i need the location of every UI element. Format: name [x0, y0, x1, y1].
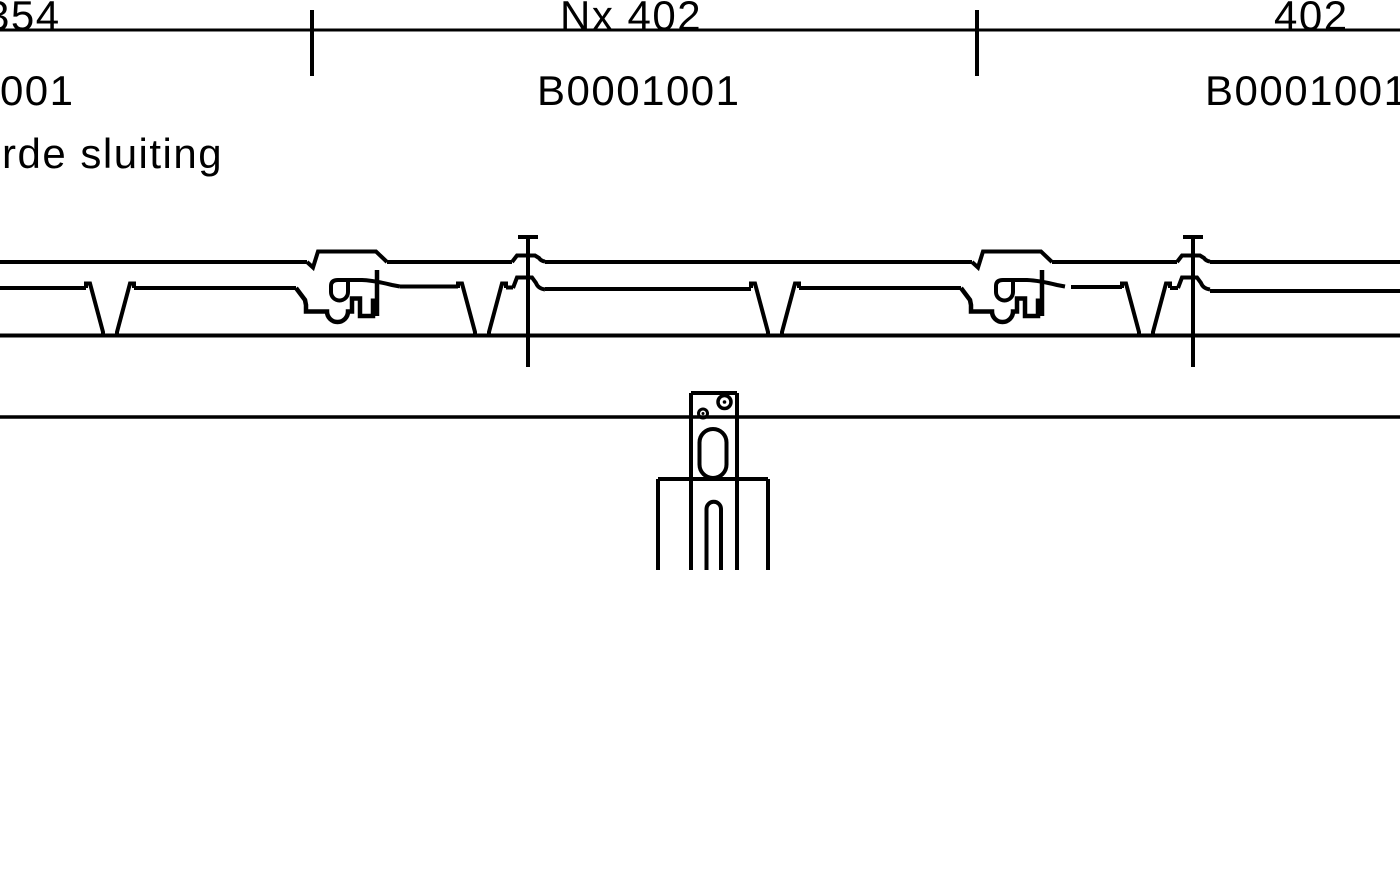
- bracket-slot-upper: [700, 429, 727, 478]
- interlock-joint-right: [961, 252, 1065, 323]
- bracket-base: [658, 479, 768, 570]
- v-groove-2: [458, 284, 506, 337]
- v-groove-4: [1122, 284, 1170, 337]
- fastener-right: [1177, 235, 1210, 367]
- technical-drawing-page: 354 Nx 402 402 B0001001 B0001001 B000100…: [0, 0, 1400, 875]
- bracket-hole-large-center: [723, 400, 727, 404]
- bracket-hole-small-center: [702, 412, 705, 415]
- bracket-slot-lower: [707, 502, 722, 570]
- v-groove-3: [751, 284, 799, 337]
- v-groove-1: [86, 284, 134, 337]
- drawing-canvas: [0, 0, 1400, 875]
- fastener-left: [512, 235, 545, 367]
- interlock-joint-left: [296, 252, 400, 323]
- bracket-detail: [658, 393, 768, 570]
- bracket-body: [691, 393, 737, 570]
- profile-face-line: [0, 287, 1400, 292]
